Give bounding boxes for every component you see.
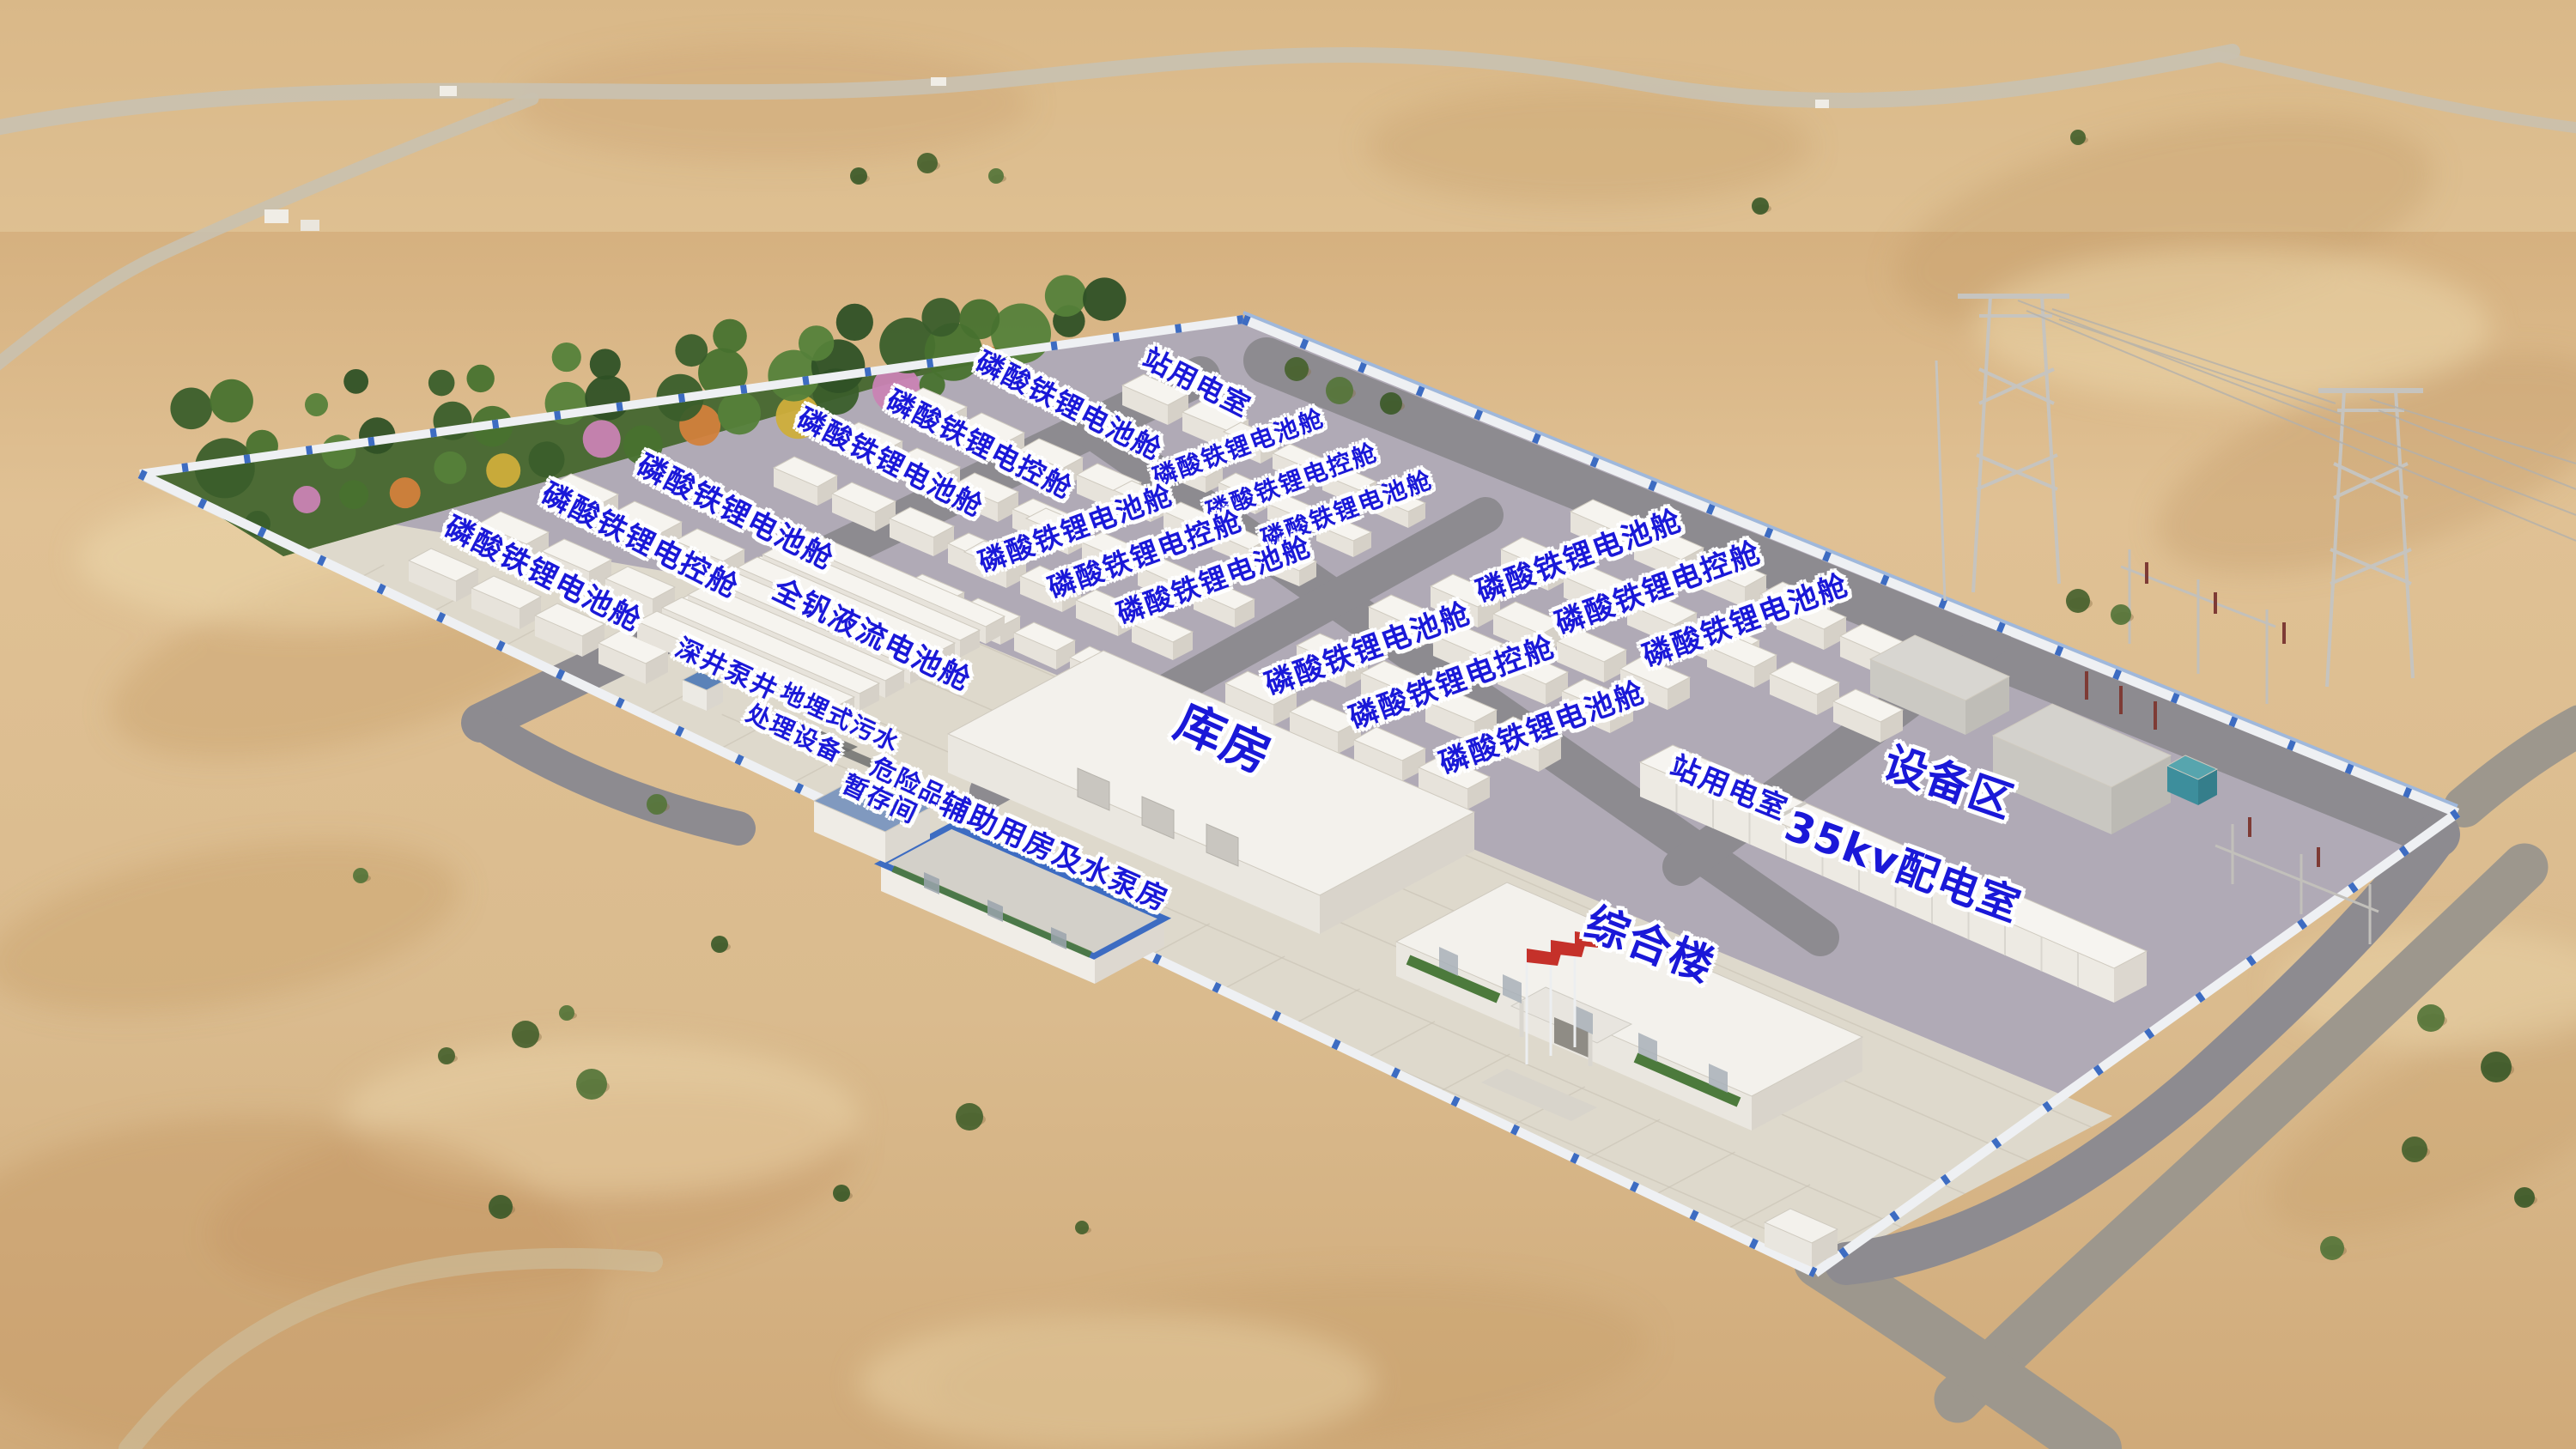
label-station-power-room-east: 站用电室	[1665, 743, 1795, 828]
label-station-power-room-north: 站用电室	[1137, 337, 1259, 426]
aerial-site-rendering: 站用电室 磷酸铁锂电池舱 磷酸铁锂电控舱 磷酸铁锂电池舱 磷酸铁锂电池舱 磷酸铁…	[0, 0, 2576, 1449]
label-warehouse: 库房	[1166, 683, 1285, 787]
label-auxiliary-pump-house: 辅助用房及水泵房	[933, 780, 1176, 919]
annotation-layer: 站用电室 磷酸铁锂电池舱 磷酸铁锂电控舱 磷酸铁锂电池舱 磷酸铁锂电池舱 磷酸铁…	[0, 0, 2576, 1449]
label-office-building: 综合楼	[1577, 888, 1724, 994]
label-deep-well-pump: 深井泵井	[671, 627, 787, 707]
label-equipment-area: 设备区	[1877, 729, 2024, 831]
